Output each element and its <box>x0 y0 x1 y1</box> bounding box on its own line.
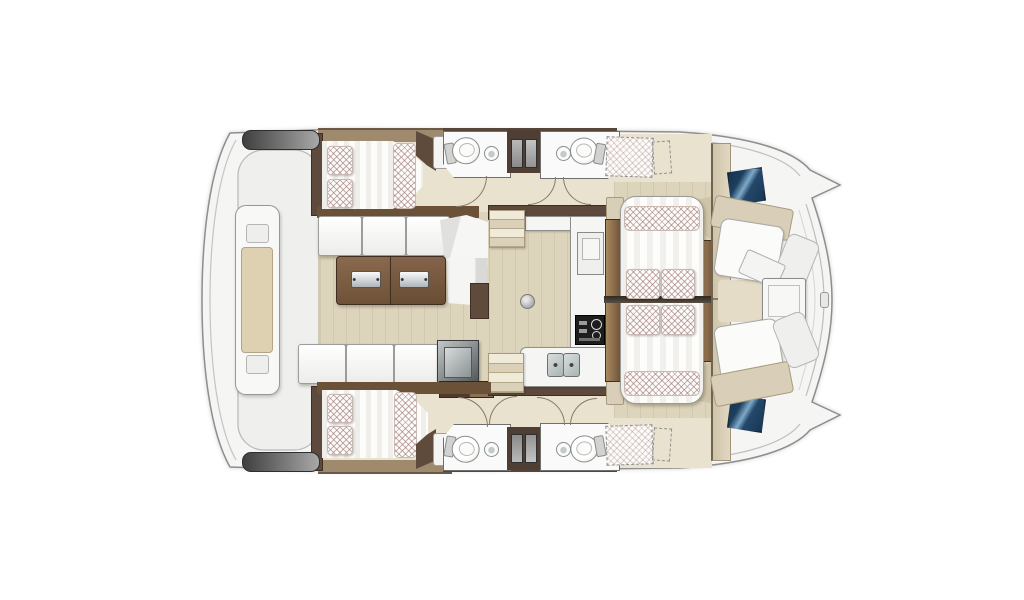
port-bed-pillow-2 <box>327 179 353 208</box>
catamaran-floor-plan <box>0 0 1024 600</box>
starboard-toilet-aft <box>443 429 481 464</box>
stair-tread <box>489 364 523 374</box>
sofa-cushion <box>299 345 345 383</box>
fridge-door <box>582 238 600 260</box>
starboard-divider-locker-2 <box>525 434 537 463</box>
starboard-forepeak-berth-extension <box>652 427 672 461</box>
salon-ottoman <box>437 340 479 385</box>
sofa-cushion <box>363 217 405 255</box>
ottoman-top <box>444 347 472 378</box>
starboard-washbasin-fwd <box>556 442 571 457</box>
stair-tread <box>490 220 524 229</box>
stove-control-strip <box>579 338 600 341</box>
console-recess-panel <box>241 247 273 353</box>
forward-cockpit-floor <box>718 280 764 322</box>
port-toilet-aft <box>443 133 481 168</box>
stair-tread <box>490 238 524 247</box>
galley-stove <box>575 315 605 345</box>
starboard-toilet-fwd <box>568 429 606 464</box>
starboard-bed-pillow-1 <box>327 394 353 423</box>
daybed-split-seam <box>604 296 715 303</box>
aft-locker-port <box>242 130 320 150</box>
table-hinge-right <box>399 271 429 288</box>
sofa-cushion <box>347 345 393 383</box>
salon-chaise-back <box>440 215 488 265</box>
console-step-aft <box>246 224 269 243</box>
sofa-cushion <box>319 217 361 255</box>
port-washbasin-fwd <box>556 146 571 161</box>
console-step-fwd <box>246 355 269 374</box>
stair-tread <box>489 383 523 393</box>
starboard-cabin-headboard-wall <box>318 460 452 474</box>
daybed-cushion <box>661 269 695 299</box>
port-toilet-fwd <box>568 133 606 168</box>
stair-tread <box>490 211 524 220</box>
port-bed-runner <box>393 143 416 209</box>
companionway-stairs-port <box>489 210 525 248</box>
daybed-band-fwd <box>624 371 700 396</box>
starboard-bed-runner <box>394 392 417 458</box>
port-divider-locker-1 <box>511 139 523 168</box>
table-leg-floor-socket <box>520 294 535 309</box>
salon-sofa-back-row <box>318 216 450 256</box>
daybed-cushion <box>661 305 695 335</box>
port-washbasin-aft <box>484 146 499 161</box>
galley-sink-left <box>547 353 564 377</box>
bow-cleat <box>820 292 829 308</box>
aft-locker-starboard <box>242 452 320 472</box>
galley-fridge <box>577 232 604 275</box>
stair-tread <box>489 354 523 364</box>
sofa-cushion <box>395 345 441 383</box>
port-forepeak-berth-extension <box>652 140 672 174</box>
stair-tread <box>490 229 524 238</box>
stove-control <box>579 329 587 333</box>
starboard-bed-pillow-2 <box>327 426 353 455</box>
starboard-forepeak-berth <box>605 424 653 466</box>
port-forepeak-berth <box>605 136 653 178</box>
companionway-stairs-starboard <box>488 353 524 393</box>
starboard-washbasin-aft <box>484 442 499 457</box>
daybed-cushion <box>626 305 660 335</box>
stove-burner <box>591 319 602 330</box>
starboard-divider-locker-1 <box>511 434 523 463</box>
stair-well-wall <box>470 283 489 319</box>
salon-sofa-front-row <box>298 344 442 384</box>
stair-tread <box>489 373 523 383</box>
port-bed-pillow-1 <box>327 146 353 175</box>
stove-control <box>579 321 587 325</box>
daybed-cushion <box>626 269 660 299</box>
daybed-band-aft <box>624 206 700 231</box>
galley-sink-right <box>563 353 580 377</box>
table-hinge-left <box>351 271 381 288</box>
port-divider-locker-2 <box>525 139 537 168</box>
